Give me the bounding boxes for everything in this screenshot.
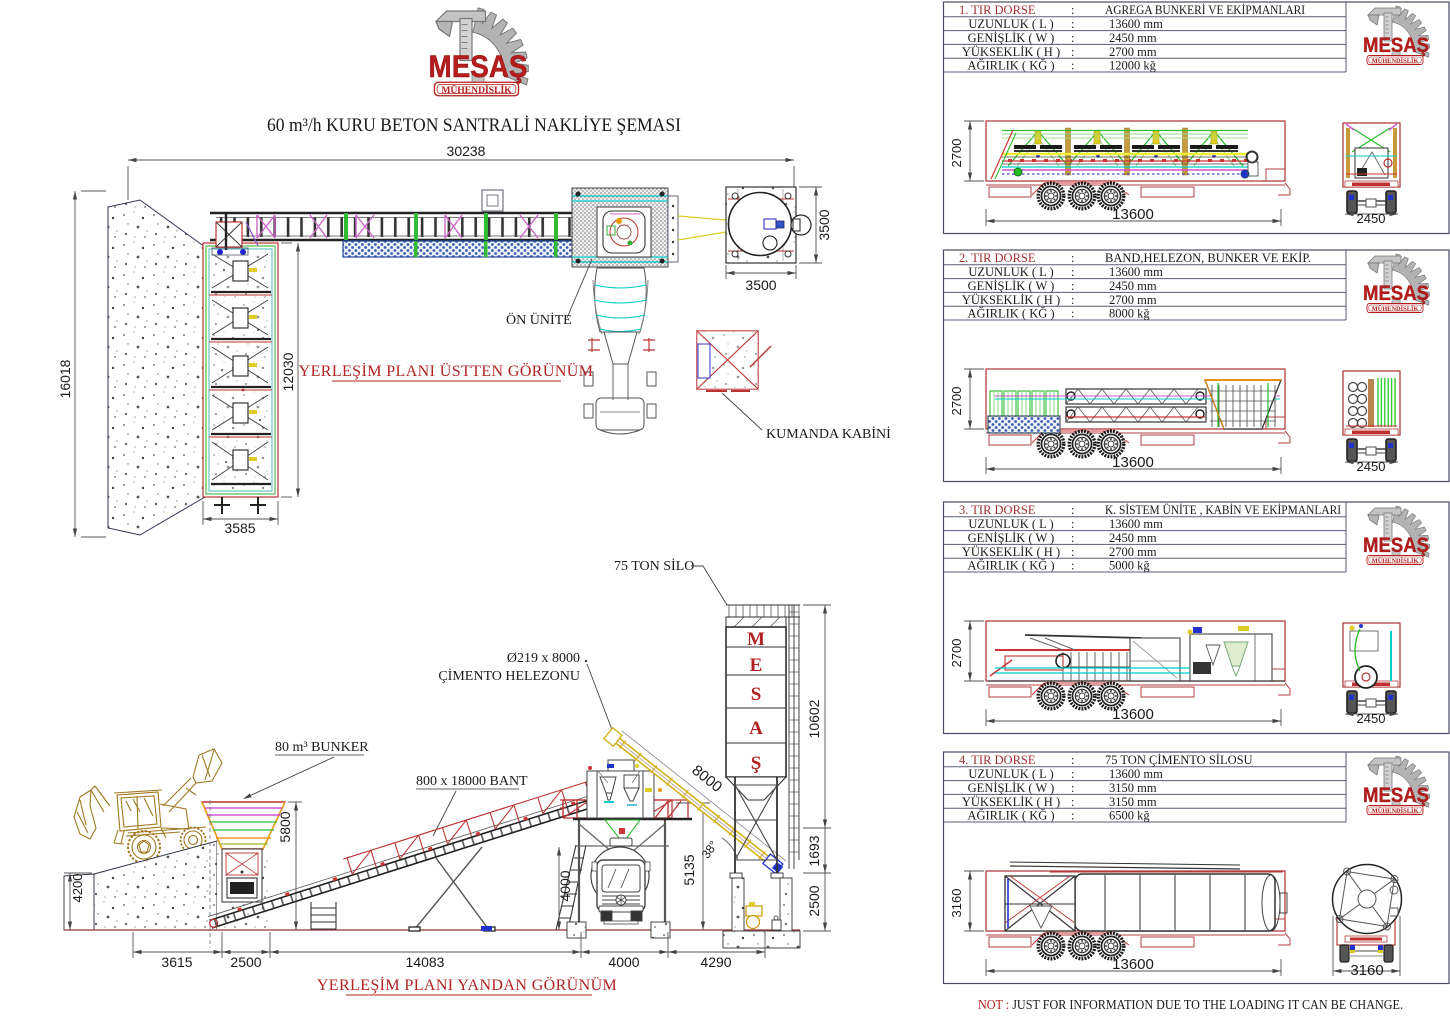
svg-text:2450 mm: 2450 mm: [1109, 279, 1157, 293]
svg-text::: :: [1071, 517, 1074, 531]
svg-text::: :: [1071, 809, 1074, 823]
svg-text::: :: [1071, 559, 1074, 573]
svg-text:30238: 30238: [447, 143, 486, 159]
svg-text:13600 mm: 13600 mm: [1109, 517, 1163, 531]
svg-text:K. SİSTEM ÜNİTE , KABİN VE EKİ: K. SİSTEM ÜNİTE , KABİN VE EKİPMANLARI: [1105, 503, 1341, 517]
svg-text:UZUNLUK ( L ): UZUNLUK ( L ): [968, 517, 1053, 531]
svg-text:2450: 2450: [1357, 459, 1386, 474]
svg-text::: :: [1071, 265, 1074, 279]
svg-text:YÜKSEKLİK ( H ): YÜKSEKLİK ( H ): [962, 45, 1060, 59]
svg-text:13600 mm: 13600 mm: [1109, 767, 1163, 781]
svg-text:13600 mm: 13600 mm: [1109, 265, 1163, 279]
svg-text:AĞIRLIK ( KĞ ): AĞIRLIK ( KĞ ): [967, 59, 1054, 73]
svg-text::: :: [1071, 3, 1074, 17]
svg-text::: :: [1071, 503, 1074, 517]
svg-text:ÖN ÜNİTE: ÖN ÜNİTE: [506, 311, 572, 328]
svg-text::: :: [1071, 795, 1074, 809]
svg-text:2700: 2700: [949, 387, 964, 416]
svg-text:2500: 2500: [806, 885, 822, 916]
svg-text::: :: [1071, 17, 1074, 31]
svg-text:A: A: [749, 718, 763, 739]
svg-text:13600 mm: 13600 mm: [1109, 17, 1163, 31]
svg-text:12000 kğ: 12000 kğ: [1109, 59, 1157, 73]
svg-text::: :: [1071, 781, 1074, 795]
svg-text:2700 mm: 2700 mm: [1109, 293, 1157, 307]
svg-text:1. TIR DORSE: 1. TIR DORSE: [959, 3, 1036, 17]
svg-text::: :: [1071, 59, 1074, 73]
svg-text:YERLEŞİM PLANI ÜSTTEN GÖRÜNÜM: YERLEŞİM PLANI ÜSTTEN GÖRÜNÜM: [299, 362, 594, 380]
svg-text:12030: 12030: [280, 352, 296, 391]
svg-text:AĞIRLIK ( KĞ ): AĞIRLIK ( KĞ ): [967, 809, 1054, 823]
svg-text:4. TIR DORSE: 4. TIR DORSE: [959, 753, 1036, 767]
svg-text:5800: 5800: [277, 811, 293, 842]
svg-text:M: M: [747, 629, 765, 650]
svg-text::: :: [1071, 251, 1074, 265]
svg-text:AĞIRLIK ( KĞ ): AĞIRLIK ( KĞ ): [967, 307, 1054, 321]
svg-text:4200: 4200: [70, 874, 85, 903]
svg-text::: :: [1071, 545, 1074, 559]
svg-text::: :: [1071, 531, 1074, 545]
svg-text:8000 kğ: 8000 kğ: [1109, 307, 1150, 321]
svg-text:13600: 13600: [1112, 454, 1154, 471]
svg-text:2. TIR DORSE: 2. TIR DORSE: [959, 251, 1036, 265]
svg-text:UZUNLUK ( L ): UZUNLUK ( L ): [968, 17, 1053, 31]
svg-text:2700: 2700: [949, 639, 964, 668]
svg-text:GENİŞLİK ( W ): GENİŞLİK ( W ): [968, 279, 1055, 293]
svg-text:2700 mm: 2700 mm: [1109, 45, 1157, 59]
svg-text:3150 mm: 3150 mm: [1109, 795, 1157, 809]
svg-text:AĞIRLIK ( KĞ ): AĞIRLIK ( KĞ ): [967, 559, 1054, 573]
svg-text:3500: 3500: [745, 277, 776, 293]
svg-text:14083: 14083: [406, 954, 445, 970]
svg-text:6500 kğ: 6500 kğ: [1109, 809, 1150, 823]
svg-text:4000: 4000: [608, 954, 639, 970]
svg-text:E: E: [750, 655, 763, 676]
svg-text:2700 mm: 2700 mm: [1109, 545, 1157, 559]
svg-text:13600: 13600: [1112, 206, 1154, 223]
svg-text:10602: 10602: [806, 699, 822, 738]
svg-text:3150 mm: 3150 mm: [1109, 781, 1157, 795]
svg-text:75 TON SİLO: 75 TON SİLO: [614, 558, 694, 574]
svg-text::: :: [1071, 753, 1074, 767]
svg-text::: :: [1071, 31, 1074, 45]
svg-text:GENİŞLİK ( W ): GENİŞLİK ( W ): [968, 31, 1055, 45]
svg-text:2450 mm: 2450 mm: [1109, 31, 1157, 45]
svg-text:4000: 4000: [557, 870, 573, 901]
svg-text:Ø219 x 8000: Ø219 x 8000: [507, 651, 580, 666]
svg-text:3615: 3615: [161, 954, 192, 970]
svg-text:800 x 18000 BANT: 800 x 18000 BANT: [416, 774, 528, 789]
svg-text:16018: 16018: [57, 359, 73, 398]
svg-text:UZUNLUK ( L ): UZUNLUK ( L ): [968, 767, 1053, 781]
svg-text:2450 mm: 2450 mm: [1109, 531, 1157, 545]
svg-text:60 m³/h KURU BETON SANTRALİ NA: 60 m³/h KURU BETON SANTRALİ NAKLİYE ŞEMA…: [267, 115, 681, 136]
svg-text:5135: 5135: [681, 854, 697, 885]
svg-text:1693: 1693: [806, 835, 822, 866]
svg-text:BAND,HELEZON, BUNKER VE EKİP.: BAND,HELEZON, BUNKER VE EKİP.: [1105, 251, 1311, 265]
svg-text:S: S: [751, 684, 762, 705]
svg-text:3160: 3160: [1350, 962, 1383, 979]
svg-text:3500: 3500: [816, 209, 832, 240]
svg-text:2450: 2450: [1357, 211, 1386, 226]
svg-text::: :: [1071, 279, 1074, 293]
svg-text:4290: 4290: [700, 954, 731, 970]
svg-text:Ş: Ş: [751, 753, 762, 774]
svg-text::: :: [1071, 767, 1074, 781]
svg-text:YÜKSEKLİK ( H ): YÜKSEKLİK ( H ): [962, 293, 1060, 307]
svg-text:2700: 2700: [949, 139, 964, 168]
svg-text:2500: 2500: [230, 954, 261, 970]
svg-text:ÇİMENTO HELEZONU: ÇİMENTO HELEZONU: [438, 668, 580, 684]
svg-text:3. TIR DORSE: 3. TIR DORSE: [959, 503, 1036, 517]
svg-text:13600: 13600: [1112, 706, 1154, 723]
svg-text:AGREGA BUNKERİ VE EKİPMANLARI: AGREGA BUNKERİ VE EKİPMANLARI: [1105, 3, 1305, 17]
svg-text:5000 kğ: 5000 kğ: [1109, 559, 1150, 573]
svg-text:GENİŞLİK ( W ): GENİŞLİK ( W ): [968, 781, 1055, 795]
svg-text:80 m³ BUNKER: 80 m³ BUNKER: [275, 740, 369, 755]
svg-text:3160: 3160: [949, 889, 964, 918]
svg-text:75 TON ÇİMENTO SİLOSU: 75 TON ÇİMENTO SİLOSU: [1105, 753, 1253, 767]
svg-text:NOT : JUST FOR INFORMATION DUE: NOT : JUST FOR INFORMATION DUE TO THE LO…: [978, 997, 1403, 1012]
svg-text::: :: [1071, 293, 1074, 307]
svg-text:YÜKSEKLİK ( H ): YÜKSEKLİK ( H ): [962, 545, 1060, 559]
svg-text:KUMANDA KABİNİ: KUMANDA KABİNİ: [766, 426, 891, 442]
svg-text::: :: [1071, 307, 1074, 321]
svg-text:2450: 2450: [1357, 711, 1386, 726]
svg-text:13600: 13600: [1112, 956, 1154, 973]
svg-text:UZUNLUK ( L ): UZUNLUK ( L ): [968, 265, 1053, 279]
svg-text::: :: [1071, 45, 1074, 59]
svg-text:GENİŞLİK ( W ): GENİŞLİK ( W ): [968, 531, 1055, 545]
svg-text:YERLEŞİM PLANI YANDAN GÖRÜNÜM: YERLEŞİM PLANI YANDAN GÖRÜNÜM: [317, 976, 617, 994]
svg-text:3585: 3585: [224, 520, 255, 536]
svg-text:YÜKSEKLİK ( H ): YÜKSEKLİK ( H ): [962, 795, 1060, 809]
